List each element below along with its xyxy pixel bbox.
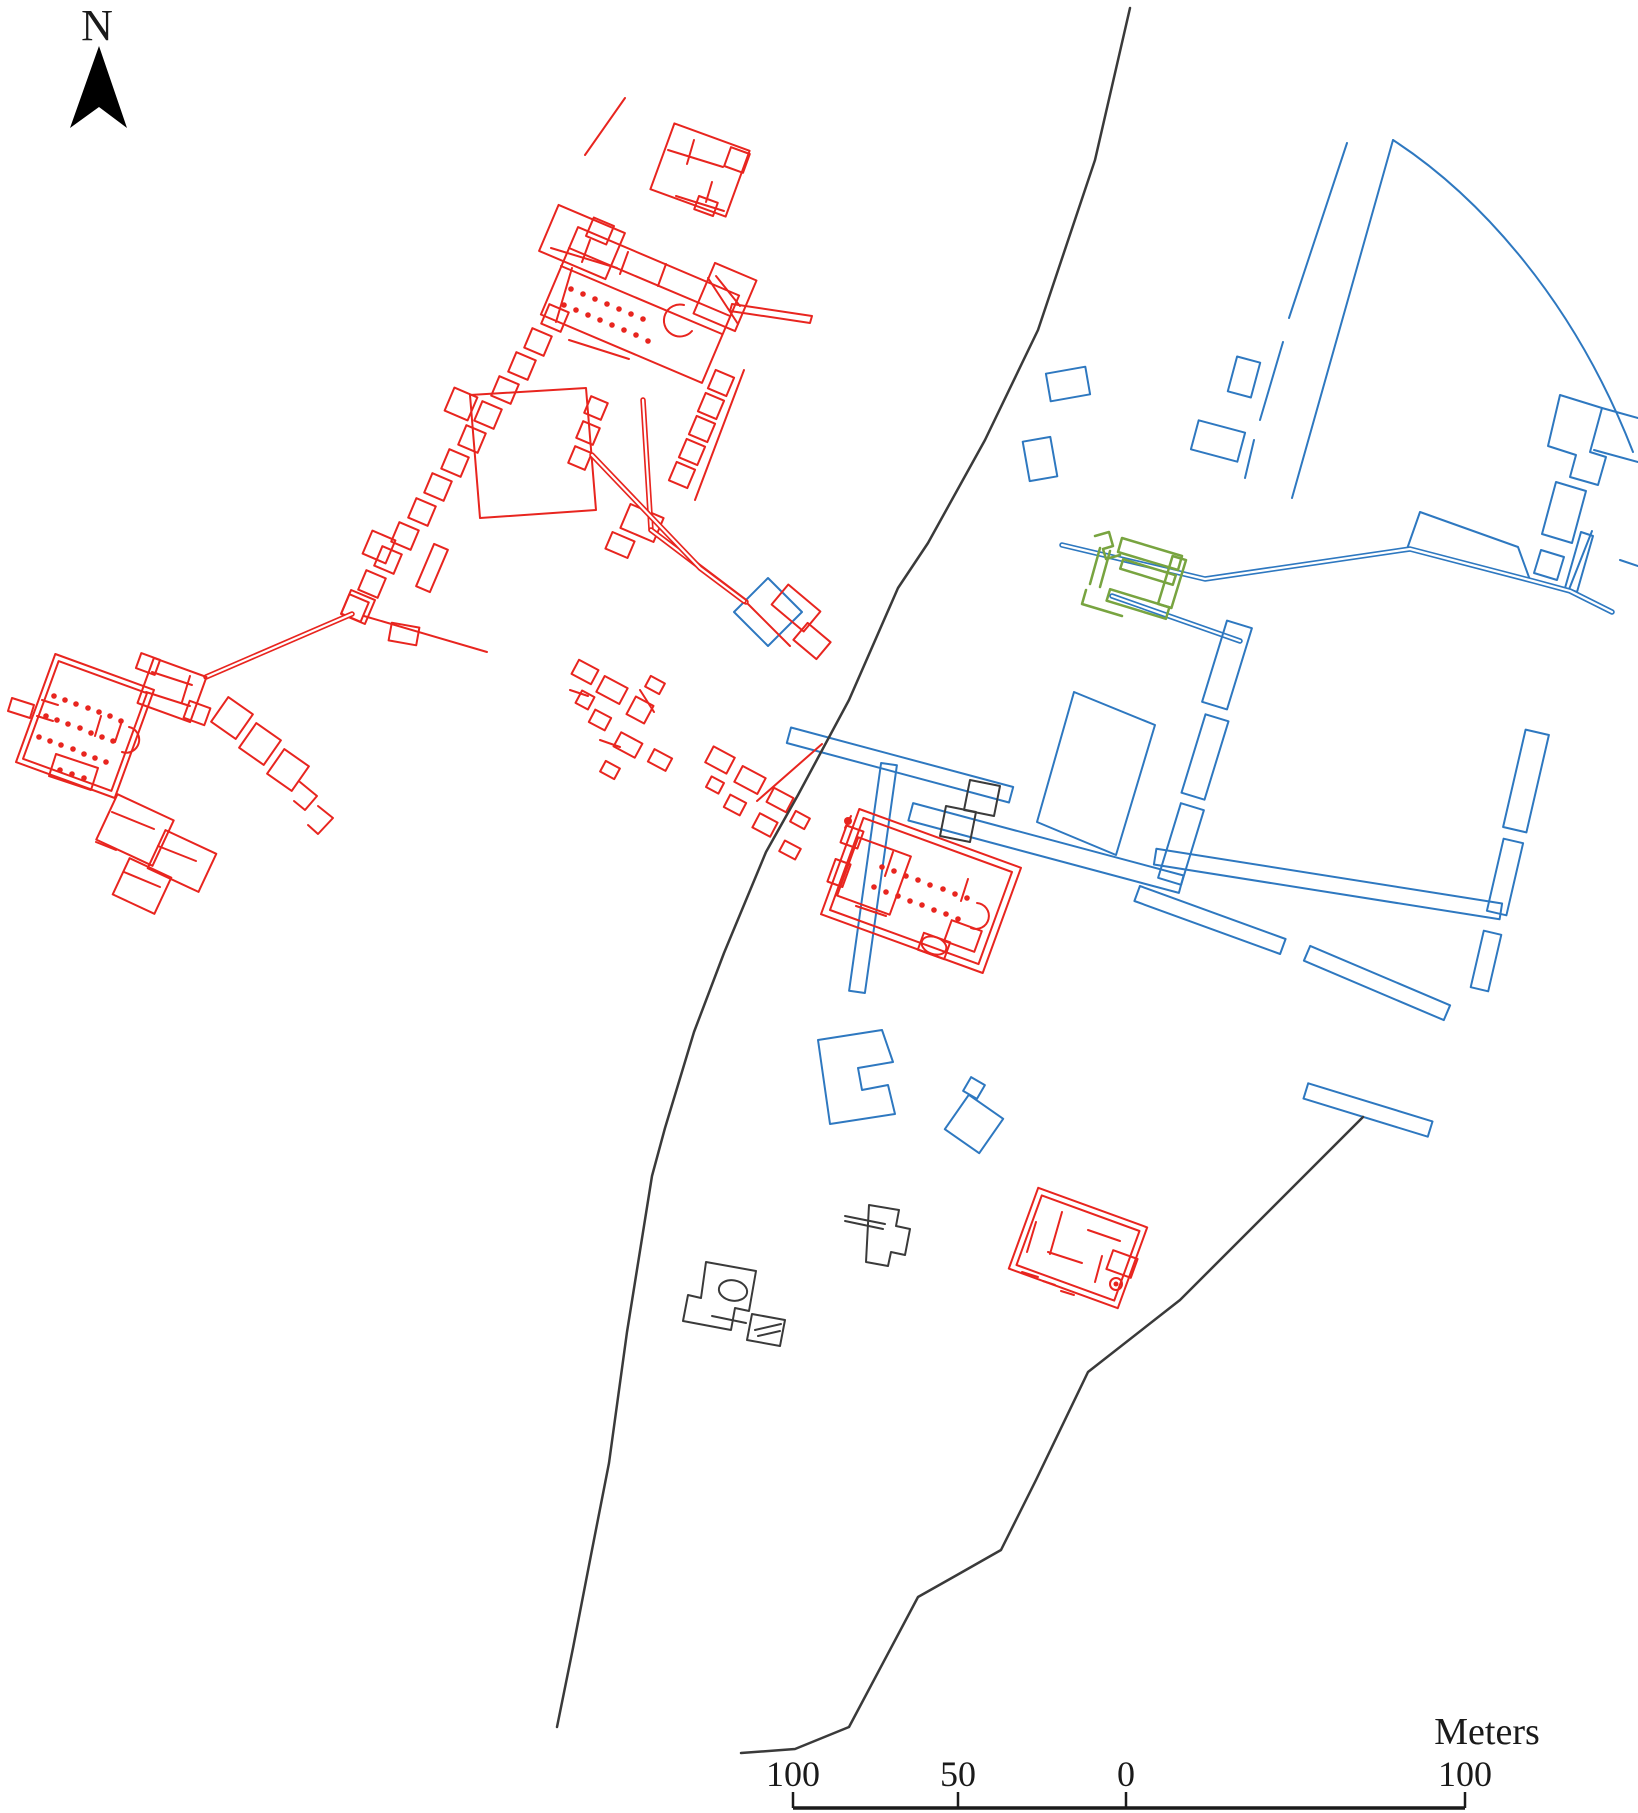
scale-bar: 100 50 0 100 Meters [766, 1711, 1540, 1808]
map-linework [8, 8, 1638, 1753]
survey-blue-features [734, 140, 1638, 1153]
site-map: N 100 50 0 100 Meters [0, 0, 1638, 1813]
black-structures [683, 780, 1000, 1346]
scale-label-left-100: 100 [766, 1754, 820, 1794]
excavated-red-structures [8, 98, 1147, 1308]
scale-label-right-100: 100 [1438, 1754, 1492, 1794]
scale-bar-ticks [793, 1792, 1465, 1808]
north-arrow-icon [70, 46, 127, 128]
scale-label-50: 50 [940, 1754, 976, 1794]
scale-unit-label: Meters [1434, 1711, 1540, 1753]
site-plan-page: N 100 50 0 100 Meters [0, 0, 1638, 1813]
north-arrow: N [70, 1, 127, 128]
north-label: N [81, 1, 113, 50]
scale-label-0: 0 [1117, 1754, 1135, 1794]
